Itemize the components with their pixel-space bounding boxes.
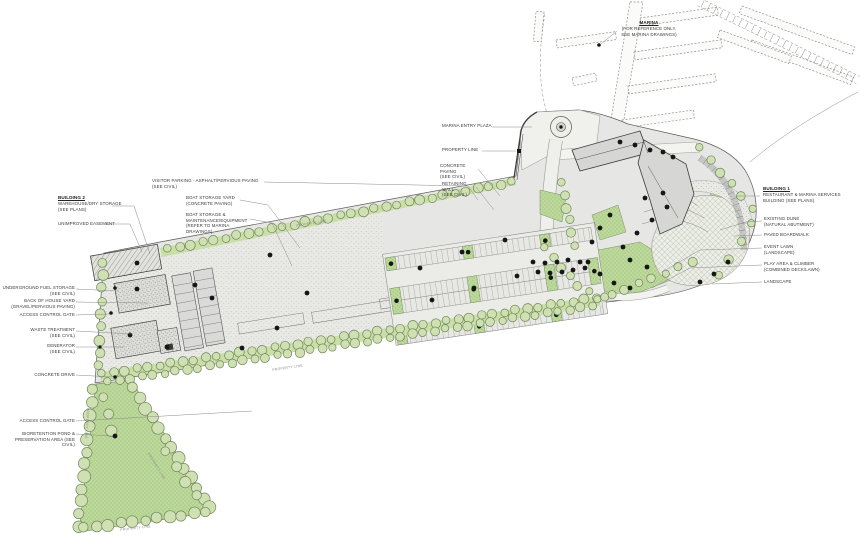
edge-tree [98, 270, 109, 281]
street-tree [163, 244, 171, 252]
street-tree [143, 362, 152, 371]
drive-tree [566, 215, 574, 223]
palm-tree [472, 286, 477, 291]
lawn-edge-tree [647, 274, 656, 283]
street-tree [531, 312, 539, 320]
dock-pier-outline [717, 30, 791, 64]
palm-tree [671, 155, 676, 160]
street-tree [255, 228, 263, 236]
dock-pier [634, 40, 722, 60]
preserve-tree [164, 511, 176, 523]
street-tree [341, 340, 350, 349]
street-tree [267, 223, 276, 232]
shoreline [750, 92, 858, 162]
edge-tree [97, 322, 106, 331]
street-tree [350, 338, 360, 348]
revetment-tick [820, 59, 823, 65]
dock-pier-outline [572, 73, 597, 86]
palm-tree [643, 196, 648, 201]
street-tree [148, 370, 157, 379]
palm-tree [612, 281, 617, 286]
label-generator: GENERATOR(SEE CIVIL) [2, 343, 75, 354]
palm-tree [566, 258, 571, 263]
street-tree [364, 338, 372, 346]
dune-edge-tree [696, 144, 703, 151]
palm-tree [515, 274, 520, 279]
revetment-tick [770, 35, 773, 41]
street-tree [507, 177, 515, 185]
lawn-edge-tree [594, 296, 601, 303]
street-tree [238, 355, 248, 365]
label-fuel-storage: UNDERGROUND FUEL STORAGE(SEE CIVIL) [2, 285, 75, 296]
palm-tree [661, 150, 666, 155]
palm-tree [635, 231, 640, 236]
label-landscape: LANDSCAPE [764, 279, 844, 285]
property-line-marker [517, 149, 521, 153]
dune-edge-tree [737, 237, 745, 245]
street-tree [304, 337, 312, 345]
revetment-tick [776, 38, 779, 44]
drive-tree [561, 191, 570, 200]
revetment-tick [720, 10, 723, 16]
revetment-tick [701, 1, 704, 7]
palm-tree [555, 260, 560, 265]
revetment-tick [726, 13, 729, 19]
street-tree [171, 366, 180, 375]
label-bioretention: BIORETENTION POND &PRESERVATION AREA (SE… [2, 431, 75, 448]
label-building-2: BUILDING 2 WAREHOUSE/DRY STORAGE(SEE PLA… [58, 195, 148, 212]
street-tree [212, 352, 220, 360]
edge-tree [98, 258, 107, 267]
palm-tree [621, 245, 626, 250]
street-tree [248, 347, 256, 355]
palm-tree [430, 298, 435, 303]
palm-tree [661, 191, 666, 196]
preserve-tree [127, 382, 137, 392]
palm-tree [305, 291, 310, 296]
walk-tree [586, 288, 593, 295]
street-tree [497, 180, 506, 189]
drive-tree [571, 242, 579, 250]
palm-tree [665, 205, 670, 210]
street-tree [454, 315, 463, 324]
palm-tree [210, 296, 215, 301]
dock-pier-outline [634, 40, 722, 60]
revetment-tick [814, 56, 817, 62]
revetment-tick [732, 16, 735, 22]
label-access-gate-2: ACCESS CONTROL GATE [2, 418, 75, 424]
edge-tree [98, 298, 107, 307]
gate-marker [109, 311, 113, 315]
lawn-edge-tree [688, 257, 697, 266]
street-tree [316, 336, 325, 345]
label-boat-storage-yard: BOAT STORAGE YARD(CONCRETE PAVING) [186, 195, 246, 206]
label-back-of-house: BACK OF HOUSE YARD(GRAVEL/PERVIOUS PAVIN… [2, 298, 75, 309]
street-tree [510, 305, 519, 314]
label-concrete-drive: CONCRETE DRIVE [2, 372, 75, 378]
street-tree [225, 351, 234, 360]
palm-tree [628, 258, 633, 263]
lawn-edge-tree [608, 291, 616, 299]
palm-tree [418, 266, 423, 271]
utility-pad [157, 327, 181, 353]
street-tree [318, 344, 327, 353]
preserve-tree [152, 422, 164, 434]
street-tree [228, 359, 237, 368]
palm-tree [113, 434, 118, 439]
preserve-tree [180, 476, 191, 487]
label-unimproved-easement: UNIMPROVED EASEMENT [58, 221, 148, 227]
label-waste-treatment: WASTE TREATMENT(SEE CIVIL) [2, 327, 75, 338]
preserve-tree [75, 494, 87, 506]
street-tree [183, 365, 193, 375]
label-marina-entry-plaza: MARINA ENTRY PLAZA [442, 123, 492, 129]
street-tree [405, 197, 414, 206]
street-tree [486, 317, 495, 326]
walk-tree [573, 282, 582, 291]
palm-tree [165, 345, 170, 350]
palm-tree [633, 143, 638, 148]
street-tree [161, 370, 168, 377]
street-tree [453, 323, 462, 332]
leader-dot [98, 345, 101, 348]
edge-tree [94, 361, 103, 370]
street-tree [104, 378, 111, 385]
palm-tree [275, 326, 280, 331]
street-tree [139, 372, 147, 380]
revetment-tick [758, 28, 761, 34]
lawn-edge-tree [674, 263, 682, 271]
label-existing-dune: EXISTING DUNE(NATURAL ABUTMENT) [764, 216, 844, 227]
palm-tree [193, 283, 198, 288]
palm-tree [531, 260, 536, 265]
street-tree [589, 302, 597, 310]
street-tree [116, 376, 125, 385]
street-tree [295, 348, 305, 358]
street-tree [428, 194, 436, 202]
leader-dot [597, 43, 601, 47]
street-tree [463, 321, 473, 331]
dock-pier [628, 74, 716, 94]
street-tree [363, 330, 371, 338]
street-tree [176, 242, 185, 251]
street-tree [216, 361, 223, 368]
revetment-tick [745, 22, 748, 28]
street-tree [441, 325, 448, 332]
dock-pier-outline [556, 32, 617, 48]
street-tree [156, 362, 164, 370]
dune-edge-tree [715, 168, 724, 177]
label-paved-boardwalk: PAVED BOARDWALK [764, 232, 844, 238]
revetment-tick [764, 31, 767, 37]
edge-tree [94, 335, 105, 346]
roundabout [551, 117, 572, 138]
preserve-tree [201, 507, 211, 517]
street-tree [189, 357, 197, 365]
street-tree [382, 202, 391, 211]
preserve-tree [99, 393, 108, 402]
label-play-area: PLAY AREA & CLIMBER(COMBINED DECK/LAWN) [764, 261, 844, 272]
preserve-tree [116, 517, 126, 527]
palm-tree [726, 260, 731, 265]
preserve-tree [189, 507, 201, 519]
street-tree [557, 299, 565, 307]
preserve-tree [104, 409, 114, 419]
palm-tree [618, 140, 623, 145]
street-tree [337, 211, 345, 219]
label-building-2-lines: WAREHOUSE/DRY STORAGE(SEE PLANS) [58, 201, 148, 212]
dock-pier-outline [628, 74, 716, 94]
label-visitor-parking: VISITOR PARKING - ASPHALT/PERVIOUS PAVIN… [152, 178, 264, 189]
street-tree [166, 358, 175, 367]
street-tree [97, 369, 105, 377]
palm-tree [608, 213, 613, 218]
street-tree [251, 355, 259, 363]
palm-tree [712, 272, 717, 277]
walk-tree [541, 244, 548, 251]
street-tree [487, 309, 496, 318]
palm-tree [645, 265, 650, 270]
street-tree [393, 201, 401, 209]
palm-tree [128, 333, 133, 338]
revetment-tick [751, 25, 754, 31]
street-tree [329, 344, 336, 351]
palm-tree [135, 261, 140, 266]
dock-pier [717, 30, 791, 64]
preserve-tree [147, 412, 158, 423]
preserve-tree [74, 508, 84, 518]
street-tree [185, 240, 195, 250]
preserve-tree [76, 484, 87, 495]
leader-dot [113, 286, 117, 290]
street-tree [370, 204, 378, 212]
street-tree [373, 334, 382, 343]
revetment-tick [783, 41, 786, 47]
label-marina: MARINA (FOR REFERENCE ONLY,SEE MARINA DR… [616, 20, 682, 37]
revetment-tick [802, 50, 805, 56]
flagpole [559, 125, 562, 128]
street-tree [274, 351, 281, 358]
street-tree [554, 308, 561, 315]
dock-pier-outline [533, 11, 544, 42]
palm-tree [648, 148, 653, 153]
street-tree [484, 182, 492, 190]
preserve-tree [172, 462, 182, 472]
preserve-tree [78, 470, 91, 483]
preserve-tree [176, 511, 186, 521]
site-plan-page: MARINA (FOR REFERENCE ONLY,SEE MARINA DR… [0, 0, 860, 546]
preserve-tree [192, 491, 201, 500]
palm-tree [503, 238, 508, 243]
palm-tree [460, 250, 465, 255]
street-tree [501, 309, 509, 317]
label-building-1: BUILDING 1 RESTAURANT & MARINA SERVICESB… [763, 186, 855, 203]
palm-tree [135, 287, 140, 292]
street-tree [386, 326, 394, 334]
palm-tree [268, 253, 273, 258]
label-access-gate-1: ACCESS CONTROL GATE [2, 312, 75, 318]
lawn-edge-tree [635, 279, 643, 287]
street-tree [478, 311, 486, 319]
dune-edge-tree [728, 179, 736, 187]
street-tree [534, 303, 542, 311]
street-tree [476, 319, 484, 327]
revetment-tick [808, 53, 811, 59]
street-tree [193, 365, 201, 373]
street-tree [340, 332, 349, 341]
palm-tree [560, 270, 565, 275]
street-tree [396, 333, 405, 342]
label-marina-lines: (FOR REFERENCE ONLY,SEE MARINA DRAWINGS) [616, 26, 682, 37]
dock-pier [533, 11, 544, 42]
edge-tree [95, 348, 105, 358]
leader-landscape [712, 282, 762, 284]
label-concrete-paving: CONCRETE PAVING(SEE CIVIL) [440, 163, 478, 180]
street-tree [260, 354, 269, 363]
street-tree [566, 306, 575, 315]
street-tree [222, 235, 230, 243]
street-tree [346, 209, 355, 218]
preserve-tree [92, 521, 103, 532]
palm-tree [598, 272, 603, 277]
label-building-1-lines: RESTAURANT & MARINA SERVICESBUILDING (SE… [763, 192, 855, 203]
street-tree [575, 302, 585, 312]
street-tree [431, 327, 440, 336]
walk-tree [601, 293, 609, 301]
palm-tree [543, 261, 548, 266]
palm-tree [586, 260, 591, 265]
street-tree [499, 317, 506, 324]
drive-tree [561, 204, 571, 214]
preserve-tree [151, 512, 162, 523]
palm-tree [698, 280, 703, 285]
street-tree [520, 312, 530, 322]
palm-tree [240, 346, 245, 351]
street-tree [408, 329, 418, 339]
preserve-tree [78, 458, 90, 470]
street-tree [359, 207, 369, 217]
preserve-tree [82, 448, 92, 458]
revetment-tick [739, 19, 742, 25]
street-tree [508, 313, 517, 322]
dock-pier [556, 32, 617, 48]
preserve-tree [87, 384, 97, 394]
street-tree [442, 316, 450, 324]
palm-tree [548, 271, 553, 276]
street-tree [543, 308, 552, 317]
palm-tree [590, 240, 595, 245]
street-tree [415, 195, 425, 205]
walk-tree [567, 272, 575, 280]
label-event-lawn: EVENT LAWN(LANDSCAPE) [764, 244, 844, 255]
label-retaining-wall: RETAINING WALL(SEE CIVIL) [442, 181, 476, 198]
street-tree [199, 237, 207, 245]
street-tree [396, 324, 405, 333]
preserve-tree [102, 520, 114, 532]
site-plan-drawing [0, 0, 860, 546]
preserve-tree [79, 522, 89, 532]
street-tree [419, 320, 427, 328]
palm-tree [583, 266, 588, 271]
revetment-tick [789, 44, 792, 50]
palm-tree [578, 260, 583, 265]
street-tree [209, 235, 218, 244]
lawn-edge-tree [620, 285, 629, 294]
street-tree [281, 341, 290, 350]
dune-edge-tree [707, 156, 715, 164]
label-property-line: PROPERTY LINE [442, 147, 482, 153]
palm-tree [628, 286, 633, 291]
dune-edge-tree [748, 220, 755, 227]
palm-tree [650, 218, 655, 223]
palm-tree [571, 268, 576, 273]
drive-tree [566, 228, 575, 237]
street-tree [110, 368, 119, 377]
dune-edge-tree [749, 205, 756, 212]
preserve-tree [87, 397, 99, 409]
street-tree [327, 336, 335, 344]
revetment-tick [795, 47, 798, 53]
preserve-tree [161, 447, 170, 456]
label-boat-maintenance: BOAT STORAGE &MAINTENANCE/EQUIPMENT(REFE… [186, 212, 252, 235]
palm-tree [536, 270, 541, 275]
street-tree [419, 329, 427, 337]
street-tree [306, 345, 314, 353]
palm-tree [598, 226, 603, 231]
street-tree [283, 349, 292, 358]
street-tree [271, 343, 279, 351]
street-tree [386, 334, 393, 341]
drive-tree [557, 178, 565, 186]
street-tree [133, 364, 141, 372]
street-tree [206, 361, 215, 370]
leader-dot [113, 375, 117, 379]
dock-pier [572, 73, 597, 86]
